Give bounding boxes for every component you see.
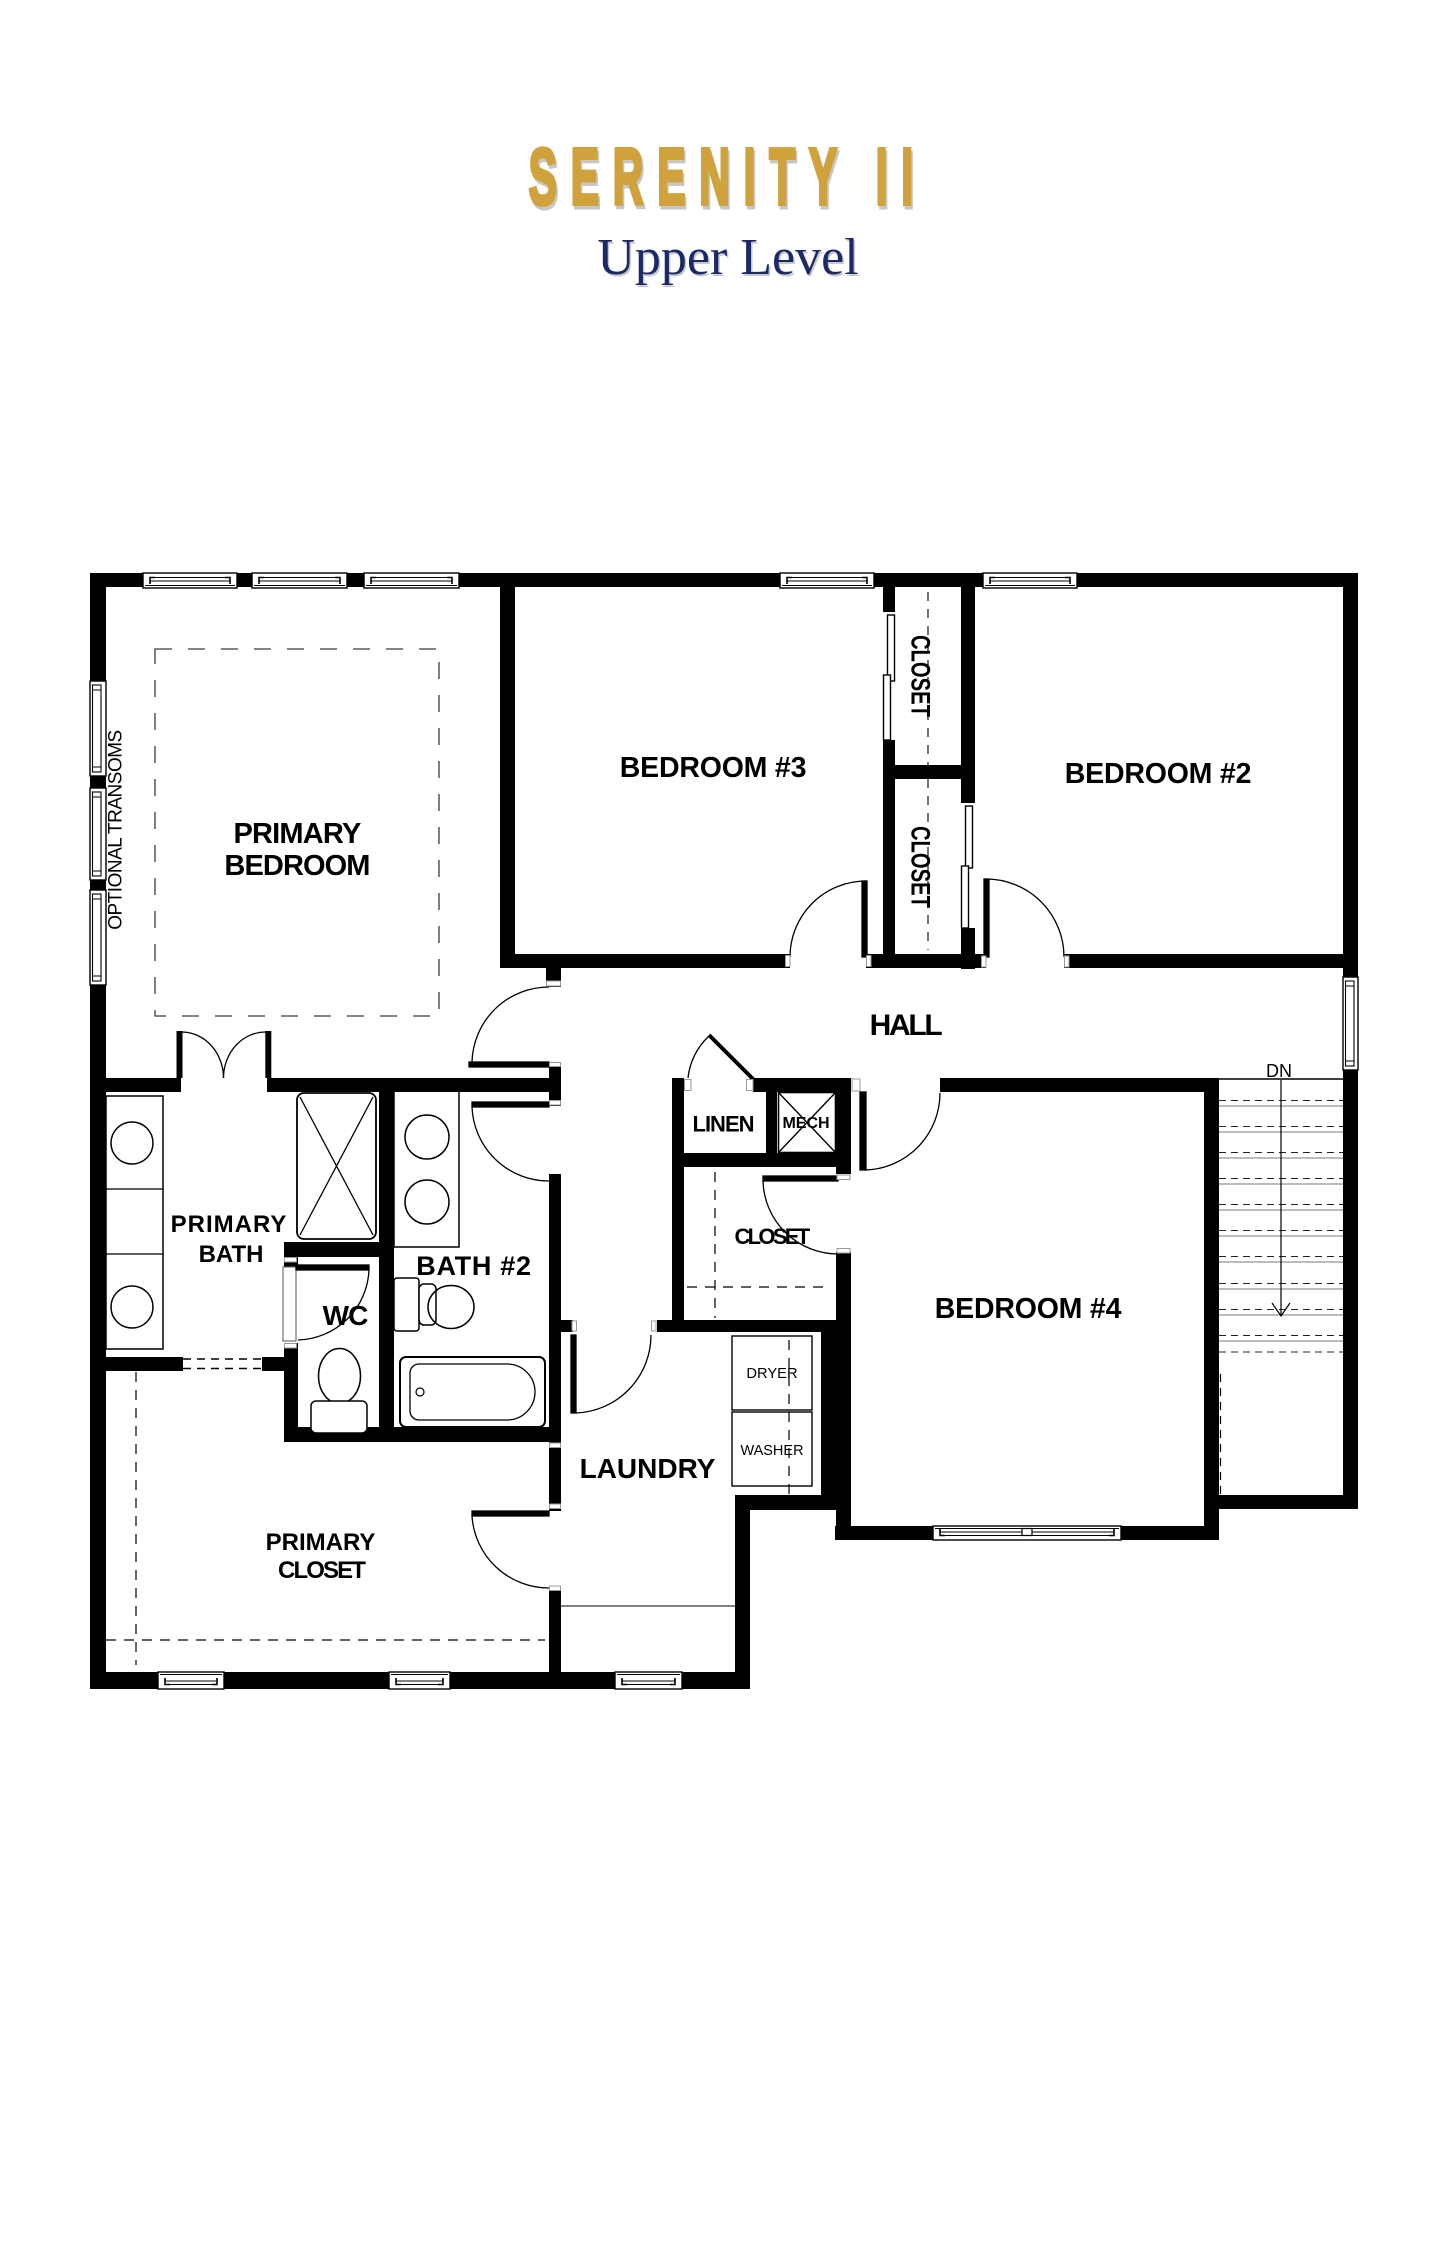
svg-text:DRYER: DRYER [746, 1366, 797, 1382]
svg-text:WASHER: WASHER [740, 1443, 803, 1459]
svg-text:WC: WC [323, 1300, 368, 1331]
svg-text:PRIMARY: PRIMARY [171, 1211, 288, 1238]
svg-text:MECH: MECH [782, 1115, 829, 1132]
svg-text:LINEN: LINEN [693, 1112, 754, 1137]
svg-text:CLOSET: CLOSET [278, 1557, 366, 1584]
svg-text:OPTIONAL TRANSOMS: OPTIONAL TRANSOMS [106, 730, 127, 929]
svg-text:CLOSET: CLOSET [905, 635, 936, 717]
svg-text:BEDROOM #2: BEDROOM #2 [1065, 758, 1251, 790]
svg-text:LAUNDRY: LAUNDRY [580, 1453, 716, 1484]
svg-text:HALL: HALL [870, 1009, 943, 1042]
svg-text:PRIMARY: PRIMARY [233, 818, 361, 850]
svg-text:DN: DN [1266, 1061, 1292, 1081]
svg-text:CLOSET: CLOSET [905, 826, 936, 908]
svg-text:BATH #2: BATH #2 [416, 1251, 531, 1281]
svg-text:PRIMARY: PRIMARY [266, 1529, 376, 1556]
svg-text:BEDROOM #4: BEDROOM #4 [935, 1293, 1122, 1325]
svg-text:Upper Level: Upper Level [597, 229, 858, 286]
svg-text:SERENITY II: SERENITY II [529, 132, 927, 222]
svg-text:BEDROOM: BEDROOM [224, 850, 369, 882]
svg-text:BEDROOM #3: BEDROOM #3 [620, 752, 806, 784]
svg-text:BATH: BATH [199, 1241, 264, 1268]
svg-text:CLOSET: CLOSET [734, 1224, 810, 1249]
